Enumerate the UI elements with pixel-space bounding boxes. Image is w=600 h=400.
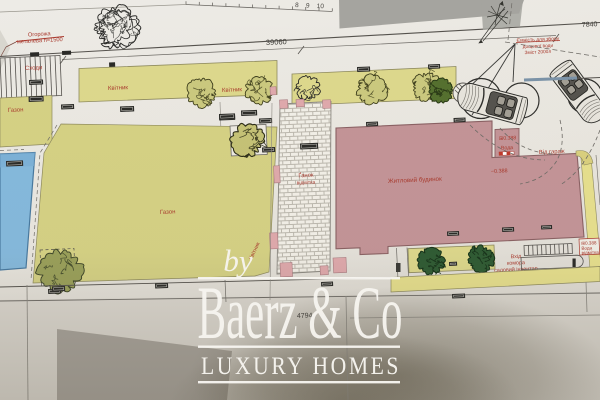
svg-text:Baerz & Co: Baerz & Co (198, 272, 403, 355)
svg-text:LUXURY HOMES: LUXURY HOMES (201, 351, 401, 380)
